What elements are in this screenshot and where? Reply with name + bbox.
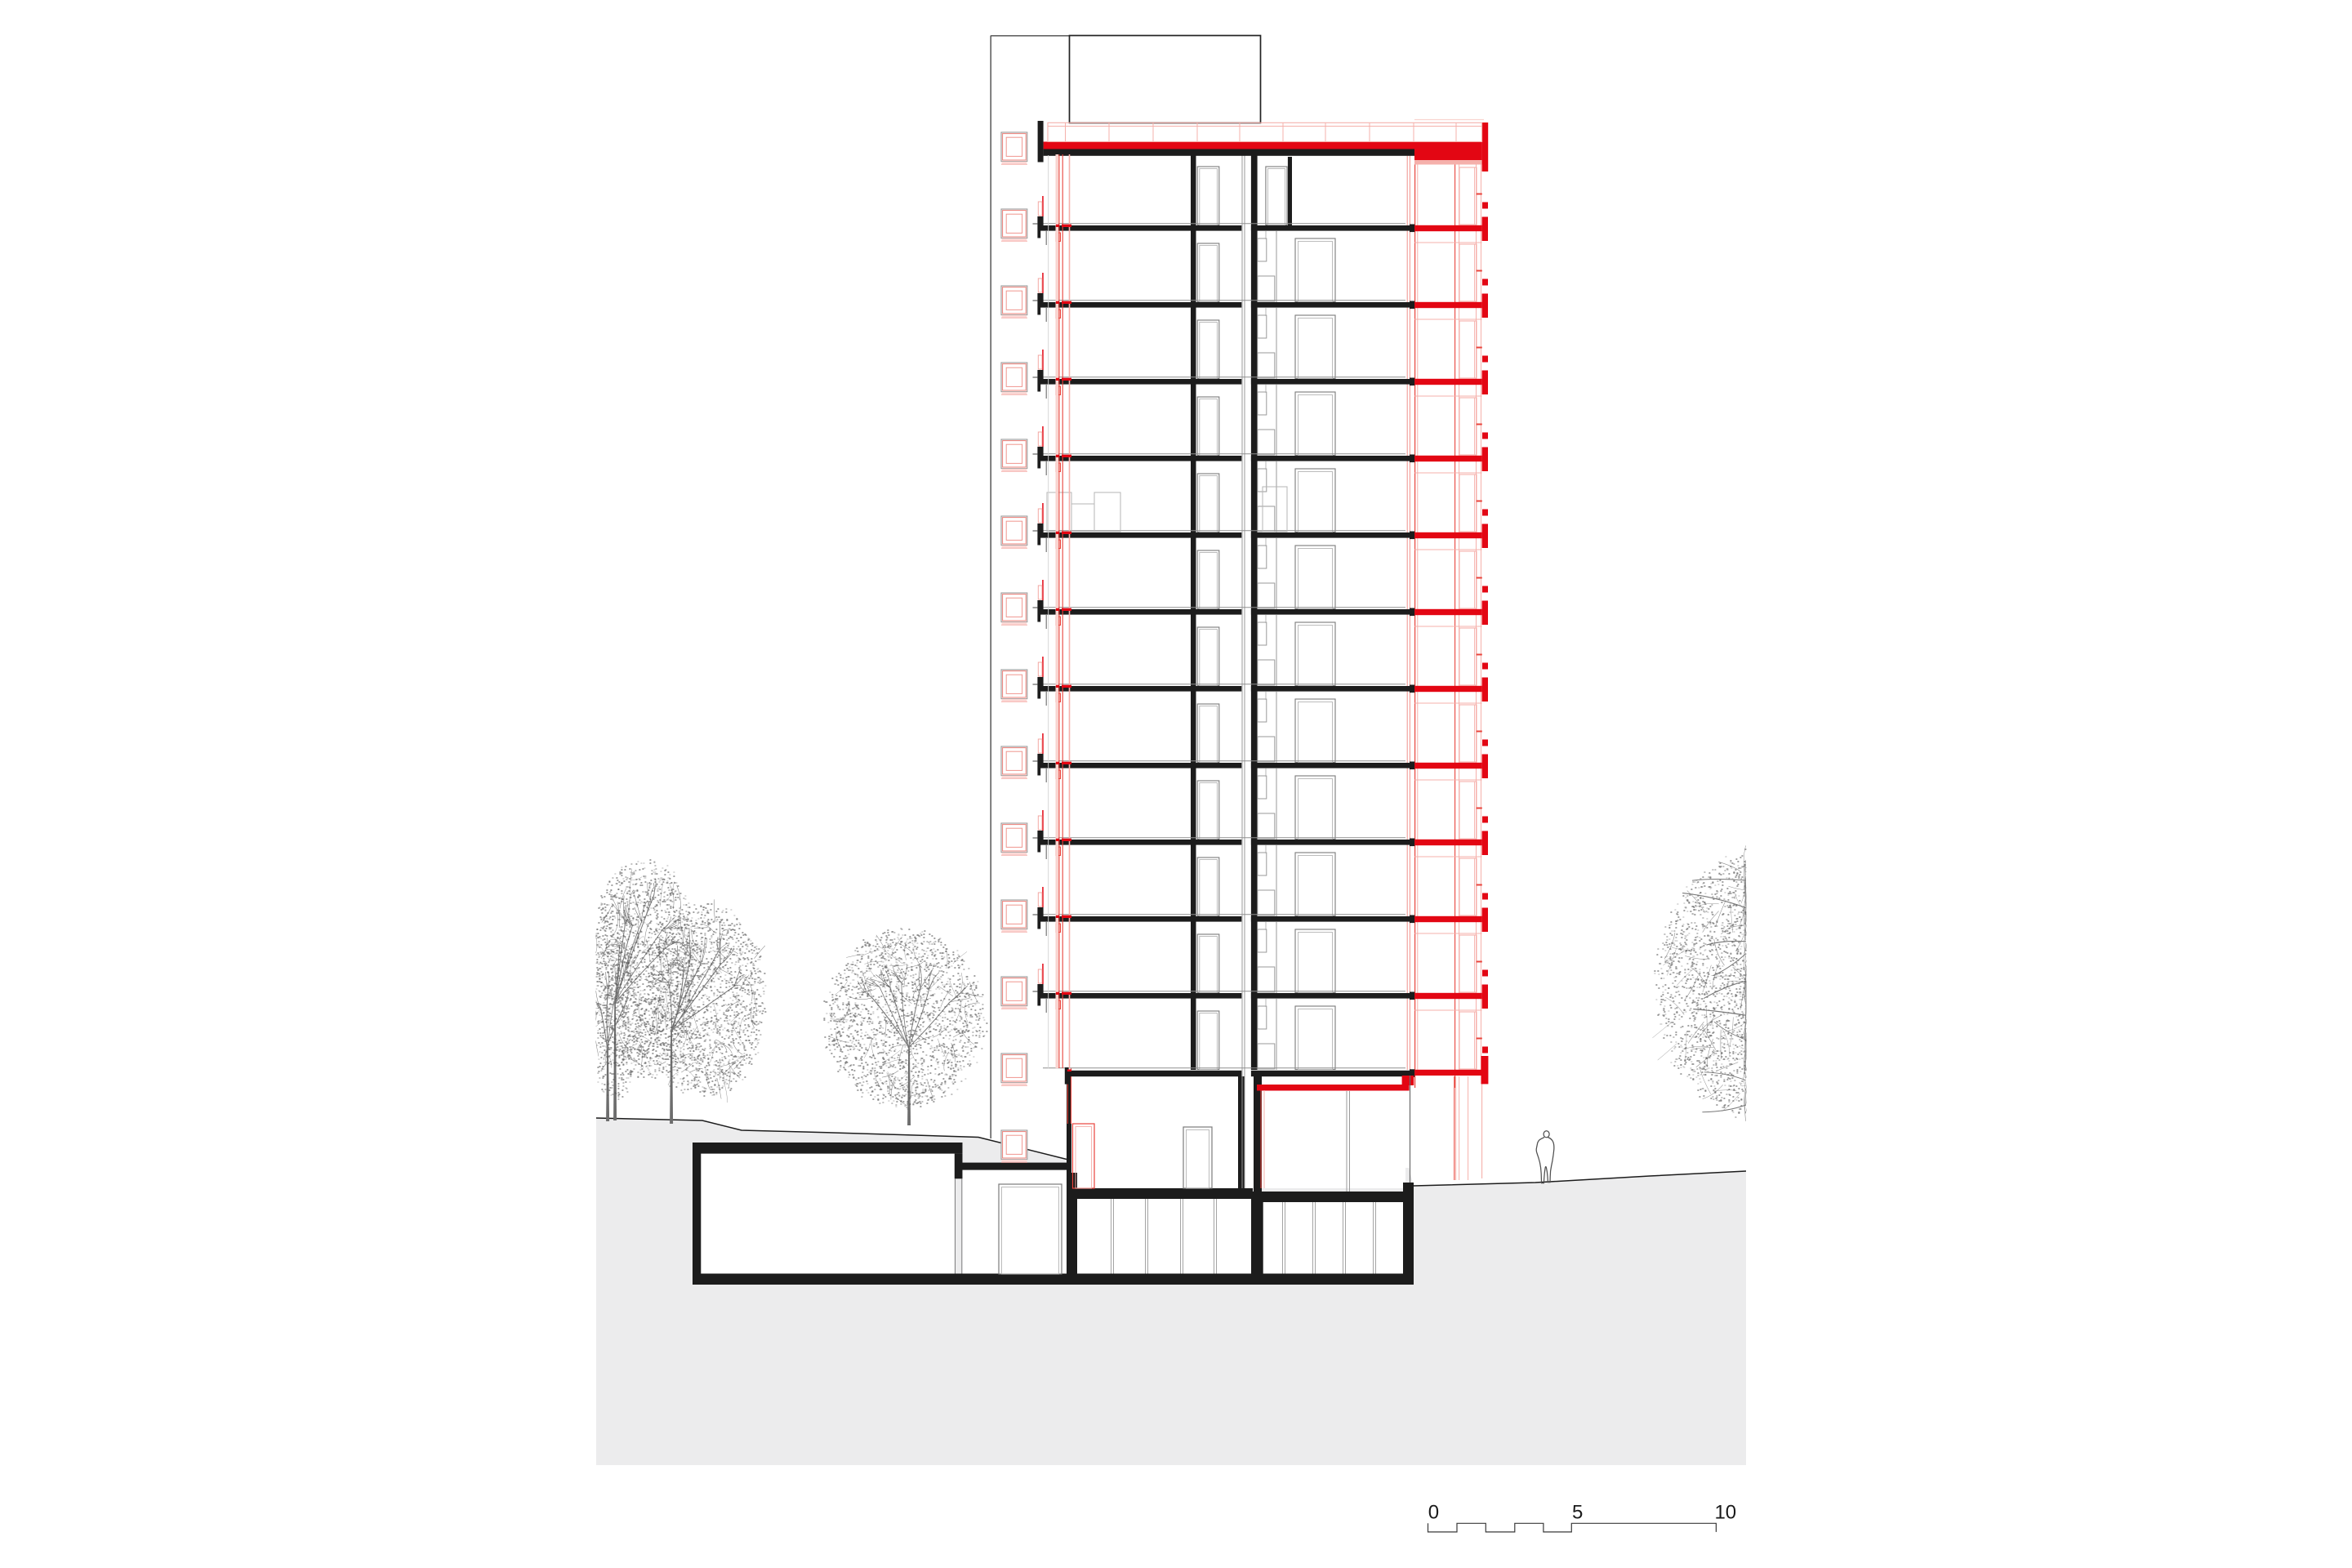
svg-text:0: 0 — [1428, 1502, 1439, 1524]
svg-text:5: 5 — [1572, 1502, 1583, 1524]
svg-text:10: 10 — [1714, 1502, 1736, 1524]
